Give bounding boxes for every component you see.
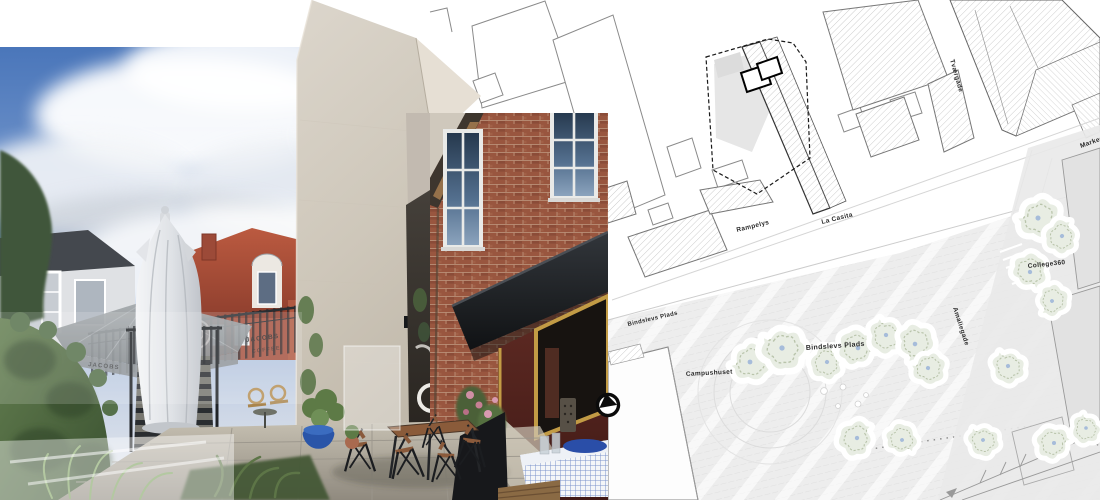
brick-window-1 — [441, 129, 485, 251]
tree-icon — [1071, 412, 1100, 446]
photomontage-and-siteplan: Rampelys La Casita Bindslevs Plads Binds… — [0, 0, 1100, 500]
tree-icon — [1034, 426, 1072, 462]
siteplan-photo-canvas: Rampelys La Casita Bindslevs Plads Binds… — [0, 0, 1100, 500]
blue-bowl — [563, 439, 607, 453]
hatch-lantern — [560, 398, 576, 432]
ghost-door-outline — [344, 346, 400, 430]
brick-window-2 — [548, 108, 600, 202]
